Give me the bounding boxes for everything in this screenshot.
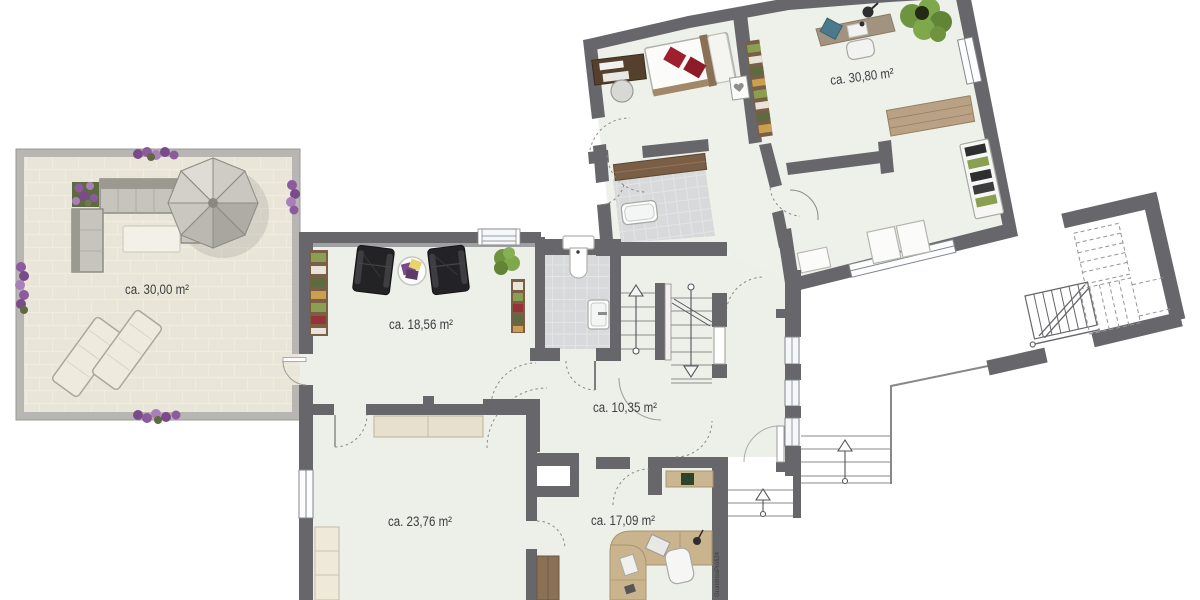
- svg-text:ca. 10,35 m²: ca. 10,35 m²: [593, 400, 657, 415]
- svg-text:ca. 30,00 m²: ca. 30,00 m²: [125, 282, 189, 297]
- svg-text:GrundrissProfi24: GrundrissProfi24: [715, 551, 721, 597]
- svg-text:ca. 23,76 m²: ca. 23,76 m²: [388, 514, 452, 529]
- svg-text:ca. 18,56 m²: ca. 18,56 m²: [389, 317, 453, 332]
- svg-text:ca. 17,09 m²: ca. 17,09 m²: [591, 513, 655, 528]
